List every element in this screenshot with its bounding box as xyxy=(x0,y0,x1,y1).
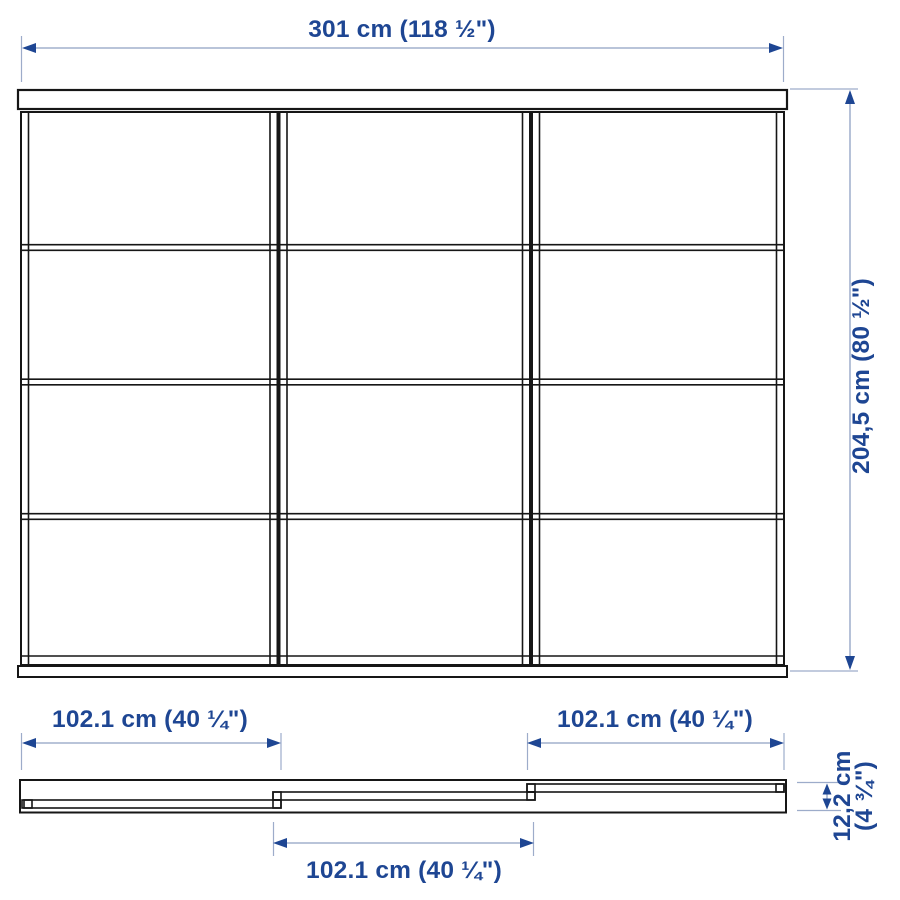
top-track xyxy=(18,90,787,109)
arrow-left-icon xyxy=(273,838,287,848)
total-width-label: 301 cm (118 ½") xyxy=(308,16,496,43)
sliding-door-drawing: 301 cm (118 ½") 204,5 cm (80 ½") xyxy=(0,0,900,900)
product-dimension-diagram: 301 cm (118 ½") 204,5 cm (80 ½") xyxy=(0,0,900,900)
plan-view xyxy=(20,780,786,813)
arrow-down-icon xyxy=(845,656,855,670)
door-panel-right xyxy=(532,112,784,665)
arrow-right-icon xyxy=(267,738,281,748)
door-left-width-dimension: 102.1 cm (40 ¼") xyxy=(22,706,282,770)
front-view xyxy=(18,90,787,677)
arrow-right-icon xyxy=(520,838,534,848)
arrow-left-icon xyxy=(527,738,541,748)
track-depth-label-line2: (4 ¾") xyxy=(851,761,878,831)
plan-door-right xyxy=(527,784,784,792)
arrow-left-icon xyxy=(22,43,36,53)
plan-door-middle xyxy=(273,792,535,800)
height-dimension: 204,5 cm (80 ½") xyxy=(790,89,875,671)
arrow-right-icon xyxy=(770,738,784,748)
bottom-track xyxy=(18,666,787,677)
door-panel-middle xyxy=(280,112,531,665)
door-middle-width-label: 102.1 cm (40 ¼") xyxy=(306,857,502,884)
total-height-label: 204,5 cm (80 ½") xyxy=(848,278,875,474)
door-middle-width-dimension: 102.1 cm (40 ¼") xyxy=(273,822,534,884)
door-right-width-dimension: 102.1 cm (40 ¼") xyxy=(527,706,784,770)
arrow-right-icon xyxy=(769,43,783,53)
door-left-width-label: 102.1 cm (40 ¼") xyxy=(52,706,248,733)
door-right-width-label: 102.1 cm (40 ¼") xyxy=(557,706,753,733)
arrow-left-icon xyxy=(22,738,36,748)
track-depth-dimension: 12,2 cm (4 ¾") xyxy=(797,750,878,841)
width-dimension: 301 cm (118 ½") xyxy=(22,16,784,82)
plan-door-left xyxy=(22,800,281,808)
door-panel-left xyxy=(21,112,278,665)
arrow-up-icon xyxy=(845,90,855,104)
